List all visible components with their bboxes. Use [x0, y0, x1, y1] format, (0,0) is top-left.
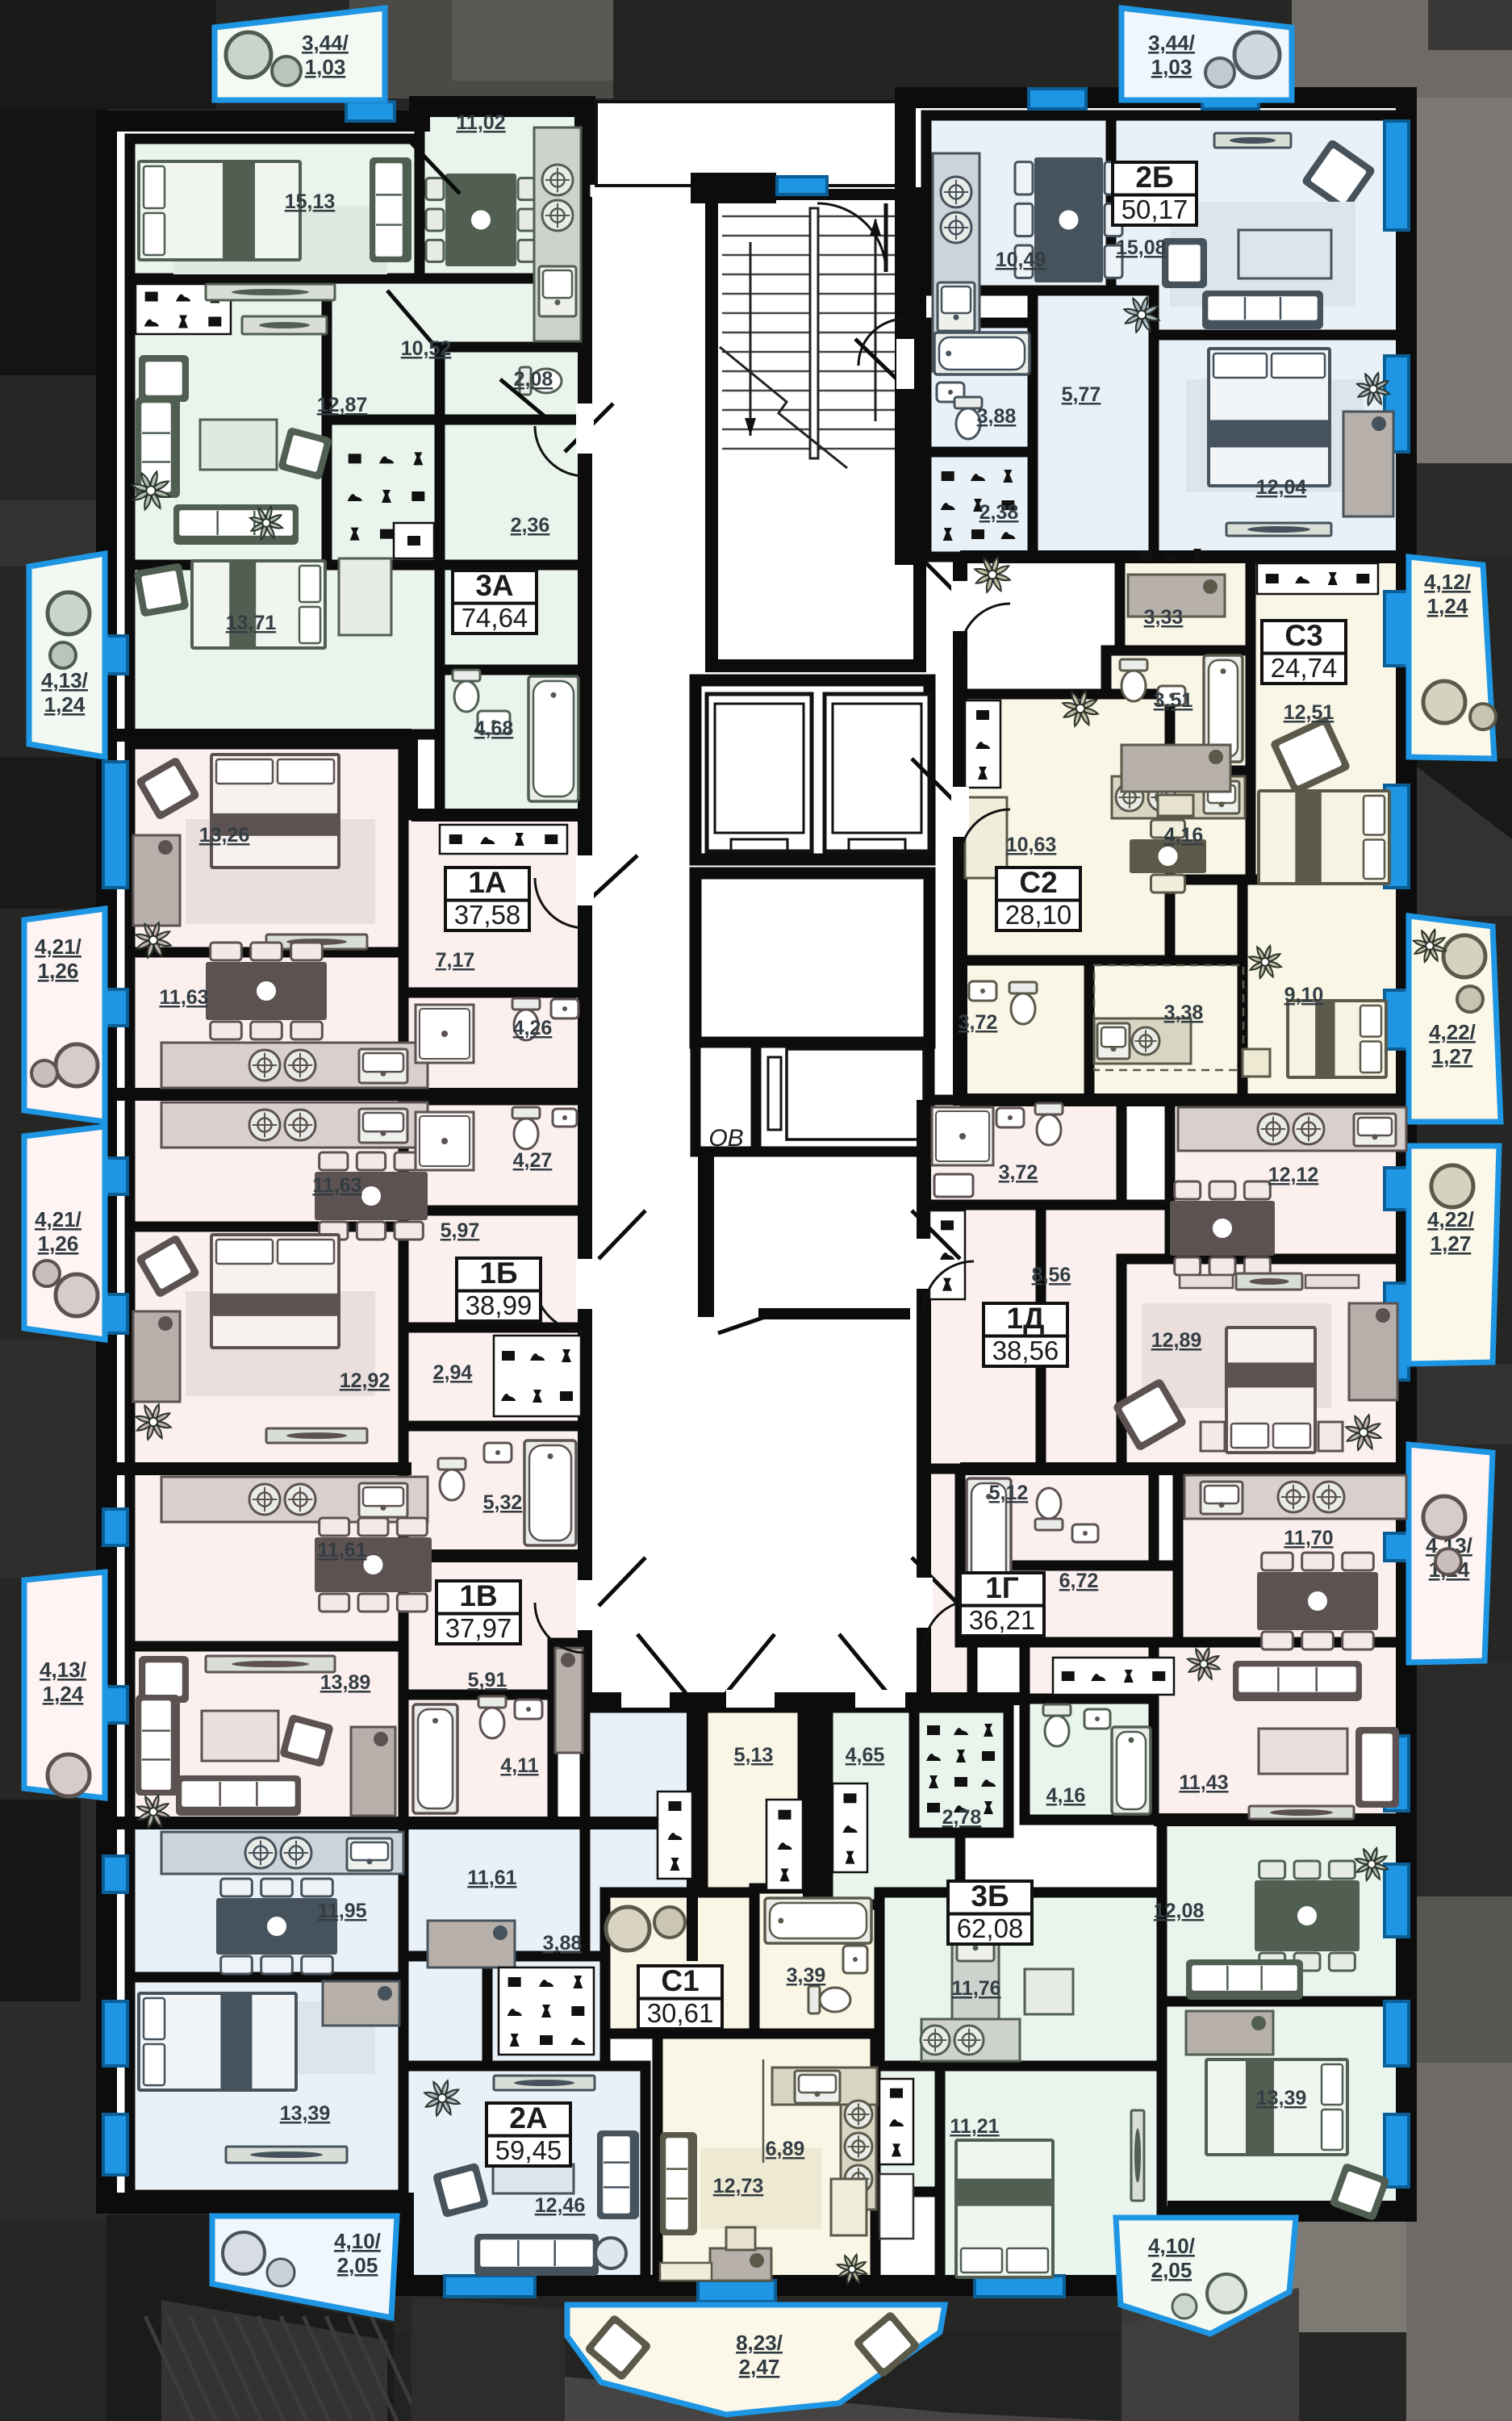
svg-text:10,49: 10,49 — [996, 249, 1046, 271]
svg-text:4,26: 4,26 — [513, 1017, 553, 1039]
svg-text:3,88: 3,88 — [543, 1932, 583, 1955]
svg-text:1Д: 1Д — [1007, 1302, 1045, 1335]
svg-text:3,51: 3,51 — [1154, 689, 1193, 712]
svg-text:11,61: 11,61 — [467, 1867, 516, 1889]
svg-text:4,21/: 4,21/ — [35, 935, 81, 959]
svg-text:1,27: 1,27 — [1431, 1231, 1472, 1256]
svg-text:12,08: 12,08 — [1154, 1900, 1205, 1922]
svg-text:11,63: 11,63 — [312, 1174, 361, 1197]
svg-text:7,17: 7,17 — [436, 949, 475, 972]
svg-text:12,73: 12,73 — [713, 2175, 764, 2197]
svg-text:11,63: 11,63 — [159, 986, 208, 1009]
svg-text:3,88: 3,88 — [977, 405, 1017, 428]
svg-text:11,70: 11,70 — [1284, 1527, 1333, 1549]
svg-text:12,12: 12,12 — [1268, 1164, 1319, 1186]
svg-text:1Б: 1Б — [479, 1256, 517, 1290]
svg-text:24,74: 24,74 — [1271, 653, 1338, 683]
svg-text:5,12: 5,12 — [989, 1482, 1029, 1504]
svg-text:1,24: 1,24 — [1427, 594, 1468, 618]
svg-text:15,13: 15,13 — [285, 190, 336, 213]
svg-text:12,89: 12,89 — [1151, 1329, 1202, 1352]
svg-text:15,08: 15,08 — [1116, 236, 1167, 259]
svg-text:50,17: 50,17 — [1121, 194, 1188, 224]
svg-text:2,08: 2,08 — [514, 368, 553, 391]
svg-text:11,21: 11,21 — [950, 2115, 999, 2138]
svg-text:38,56: 38,56 — [992, 1336, 1059, 1365]
svg-text:2А: 2А — [509, 2101, 547, 2135]
svg-text:11,95: 11,95 — [317, 1900, 366, 1922]
svg-text:13,39: 13,39 — [1256, 2087, 1307, 2109]
svg-text:3,39: 3,39 — [787, 1964, 826, 1987]
svg-text:С3: С3 — [1284, 619, 1322, 652]
svg-text:11,43: 11,43 — [1179, 1771, 1228, 1794]
svg-text:11,02: 11,02 — [456, 111, 505, 134]
svg-text:2,05: 2,05 — [337, 2253, 378, 2277]
svg-text:4,65: 4,65 — [846, 1744, 885, 1767]
svg-text:36,21: 36,21 — [969, 1605, 1036, 1635]
svg-text:3,72: 3,72 — [959, 1011, 998, 1034]
svg-text:4,27: 4,27 — [513, 1149, 553, 1172]
svg-text:2,94: 2,94 — [433, 1361, 473, 1384]
svg-text:11,61: 11,61 — [317, 1539, 366, 1562]
svg-text:3,38: 3,38 — [1164, 1001, 1204, 1024]
svg-text:1В: 1В — [459, 1579, 497, 1612]
svg-text:59,45: 59,45 — [495, 2135, 562, 2165]
svg-text:1,24: 1,24 — [44, 692, 86, 717]
svg-text:6,89: 6,89 — [766, 2138, 805, 2160]
svg-text:4,16: 4,16 — [1164, 824, 1204, 847]
svg-text:4,21/: 4,21/ — [35, 1207, 81, 1231]
svg-text:13,39: 13,39 — [280, 2102, 331, 2125]
svg-text:1,24: 1,24 — [43, 1682, 84, 1706]
svg-text:2,36: 2,36 — [511, 514, 550, 537]
svg-text:3,44/: 3,44/ — [1148, 31, 1195, 55]
svg-text:4,12/: 4,12/ — [1424, 570, 1471, 594]
svg-text:12,51: 12,51 — [1284, 701, 1334, 724]
svg-text:2Б: 2Б — [1135, 161, 1173, 194]
svg-text:С1: С1 — [661, 1964, 699, 1997]
svg-text:11,76: 11,76 — [951, 1977, 1000, 2000]
svg-text:4,16: 4,16 — [1046, 1784, 1086, 1807]
svg-text:4,10/: 4,10/ — [1148, 2234, 1195, 2258]
svg-text:3,44/: 3,44/ — [302, 31, 349, 55]
svg-text:3,72: 3,72 — [999, 1161, 1038, 1184]
svg-text:1,03: 1,03 — [305, 55, 346, 79]
svg-text:4,11: 4,11 — [500, 1754, 538, 1777]
svg-text:3,33: 3,33 — [1144, 606, 1184, 629]
svg-text:5,91: 5,91 — [468, 1669, 507, 1691]
svg-text:3А: 3А — [475, 569, 513, 602]
svg-text:74,64: 74,64 — [462, 603, 528, 633]
svg-text:2,38: 2,38 — [979, 501, 1019, 524]
svg-text:4,10/: 4,10/ — [334, 2229, 381, 2253]
svg-text:10,63: 10,63 — [1006, 834, 1057, 856]
svg-text:37,58: 37,58 — [454, 900, 521, 930]
svg-text:4,13/: 4,13/ — [40, 1658, 86, 1682]
svg-text:5,97: 5,97 — [441, 1219, 480, 1242]
svg-text:5,13: 5,13 — [734, 1744, 774, 1767]
svg-text:1А: 1А — [468, 866, 506, 899]
svg-text:5,32: 5,32 — [483, 1491, 523, 1514]
svg-text:10,52: 10,52 — [401, 337, 452, 360]
svg-text:12,46: 12,46 — [535, 2194, 586, 2217]
svg-text:2,05: 2,05 — [1151, 2258, 1192, 2282]
svg-text:1,27: 1,27 — [1432, 1044, 1473, 1068]
svg-text:4,13/: 4,13/ — [41, 668, 88, 692]
svg-text:13,26: 13,26 — [199, 824, 250, 847]
svg-text:38,99: 38,99 — [466, 1290, 533, 1320]
svg-text:13,89: 13,89 — [320, 1671, 371, 1694]
svg-text:12,92: 12,92 — [340, 1369, 391, 1392]
svg-text:4,68: 4,68 — [474, 717, 514, 740]
svg-text:28,10: 28,10 — [1005, 900, 1072, 930]
svg-text:1,26: 1,26 — [38, 1231, 79, 1256]
svg-text:2,78: 2,78 — [942, 1806, 982, 1829]
svg-text:3Б: 3Б — [971, 1880, 1009, 1913]
svg-text:13,71: 13,71 — [226, 612, 277, 634]
svg-text:5,77: 5,77 — [1062, 383, 1101, 406]
svg-text:1,26: 1,26 — [38, 959, 79, 983]
svg-text:4,22/: 4,22/ — [1427, 1207, 1474, 1231]
svg-text:1Г: 1Г — [985, 1571, 1019, 1604]
svg-text:4,22/: 4,22/ — [1429, 1020, 1476, 1044]
svg-text:С2: С2 — [1019, 866, 1057, 899]
svg-text:ОВ: ОВ — [708, 1125, 743, 1152]
svg-text:8,56: 8,56 — [1032, 1264, 1071, 1286]
svg-text:6,72: 6,72 — [1059, 1570, 1099, 1592]
svg-text:12,87: 12,87 — [317, 394, 368, 416]
svg-text:37,97: 37,97 — [445, 1613, 512, 1643]
svg-text:12,04: 12,04 — [1256, 476, 1307, 499]
svg-text:9,10: 9,10 — [1284, 984, 1324, 1006]
svg-text:30,61: 30,61 — [647, 1998, 714, 2028]
svg-text:1,03: 1,03 — [1151, 55, 1192, 79]
svg-text:8,23/: 8,23/ — [736, 2331, 783, 2355]
svg-text:62,08: 62,08 — [957, 1913, 1024, 1943]
svg-text:2,47: 2,47 — [739, 2355, 780, 2379]
